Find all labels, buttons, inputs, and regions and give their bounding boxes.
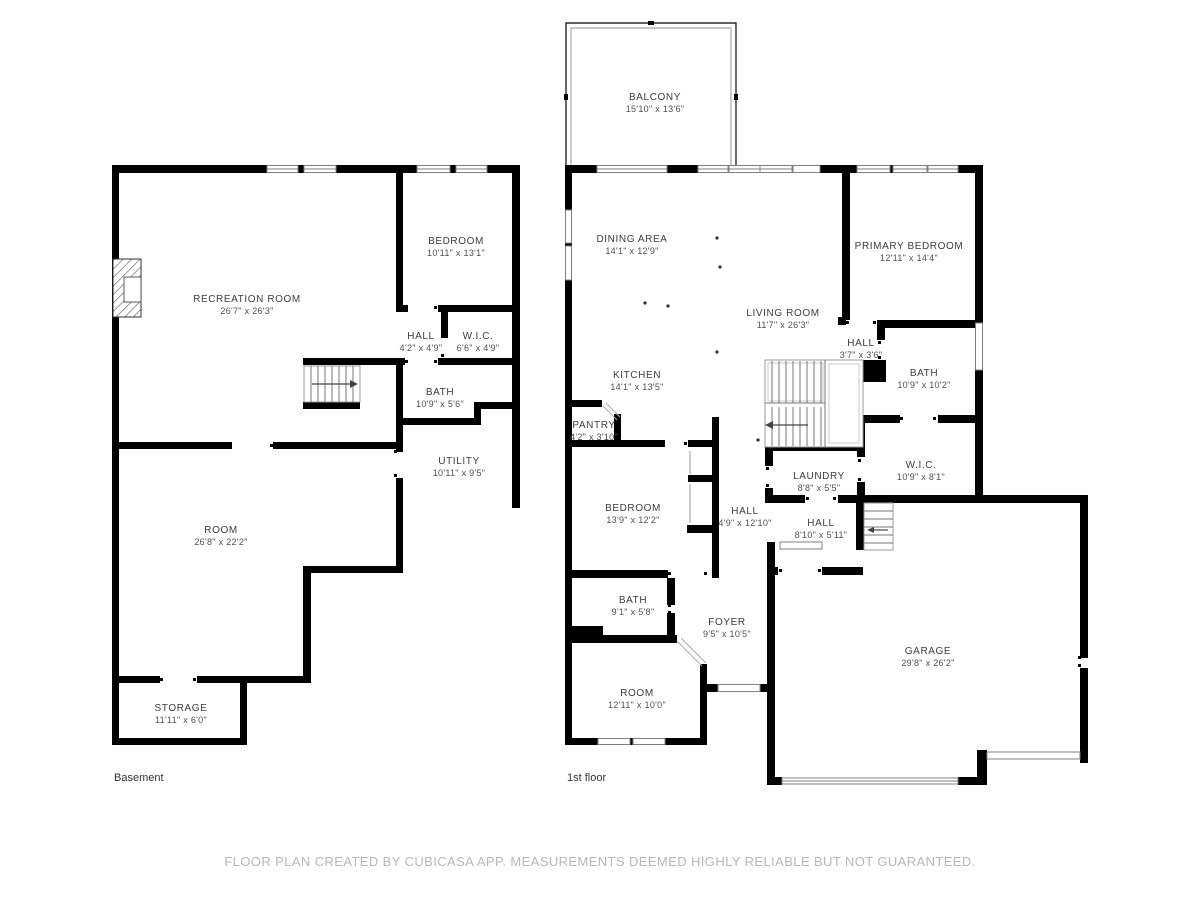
main-stairs-icon <box>765 360 863 447</box>
room-label-dining-area: DINING AREA 14'1" x 12'9" <box>596 234 667 256</box>
room-label-basement-bath: BATH 10'9" x 5'6" <box>416 387 464 409</box>
floor-caption-first-floor: 1st floor <box>567 772 606 784</box>
fireplace-icon <box>113 259 141 317</box>
room-label-basement-hall: HALL 4'2" x 4'9" <box>400 331 443 353</box>
room-label-recreation-room: RECREATION ROOM 26'7" x 26'3" <box>193 294 301 316</box>
room-label-long-hall: HALL 4'9" x 12'10" <box>718 506 771 528</box>
floorplan-svg <box>0 0 1200 900</box>
basement-stairs-icon <box>304 366 360 402</box>
room-label-primary-bedroom: PRIMARY BEDROOM 12'11" x 14'4" <box>855 241 964 263</box>
basement-access-stairs-icon <box>864 503 893 550</box>
room-label-storage: STORAGE 11'11" x 6'0" <box>155 703 208 725</box>
room-label-primary-hall: HALL 3'7" x 3'6" <box>840 338 883 360</box>
room-label-kitchen: KITCHEN 14'1" x 13'5" <box>610 370 663 392</box>
room-label-balcony: BALCONY 15'10" x 13'6" <box>626 92 685 114</box>
room-label-utility: UTILITY 10'11" x 9'5" <box>433 456 486 478</box>
room-label-basement-wic: W.I.C. 6'6" x 4'9" <box>457 331 500 353</box>
footer-disclaimer: FLOOR PLAN CREATED BY CUBICASA APP. MEAS… <box>0 854 1200 869</box>
first-floor-plan <box>564 21 1088 785</box>
room-label-first-floor-wic: W.I.C. 10'9" x 8'1" <box>897 460 945 482</box>
room-label-first-floor-bedroom: BEDROOM 13'9" x 12'2" <box>605 503 661 525</box>
room-label-laundry: LAUNDRY 8'8" x 5'5" <box>793 471 845 493</box>
room-label-garage-hall: HALL 8'10" x 5'11" <box>795 518 848 540</box>
room-label-pantry: PANTRY 4'2" x 3'10" <box>570 420 618 442</box>
room-label-first-floor-room: ROOM 12'11" x 10'0" <box>608 688 666 710</box>
room-label-first-floor-bath: BATH 9'1" x 5'8" <box>612 595 655 617</box>
floor-caption-basement: Basement <box>114 772 164 784</box>
room-label-foyer: FOYER 9'5" x 10'5" <box>703 617 751 639</box>
room-label-living-room: LIVING ROOM 11'7" x 26'3" <box>746 308 819 330</box>
ceiling-dots <box>643 236 759 441</box>
floorplan-canvas: BEDROOM 10'11" x 13'1" RECREATION ROOM 2… <box>0 0 1200 900</box>
room-label-basement-room: ROOM 26'8" x 22'2" <box>194 525 247 547</box>
room-label-basement-bedroom: BEDROOM 10'11" x 13'1" <box>427 236 485 258</box>
room-label-garage: GARAGE 29'8" x 26'2" <box>901 646 954 668</box>
room-label-primary-bath: BATH 10'9" x 10'2" <box>897 368 950 390</box>
